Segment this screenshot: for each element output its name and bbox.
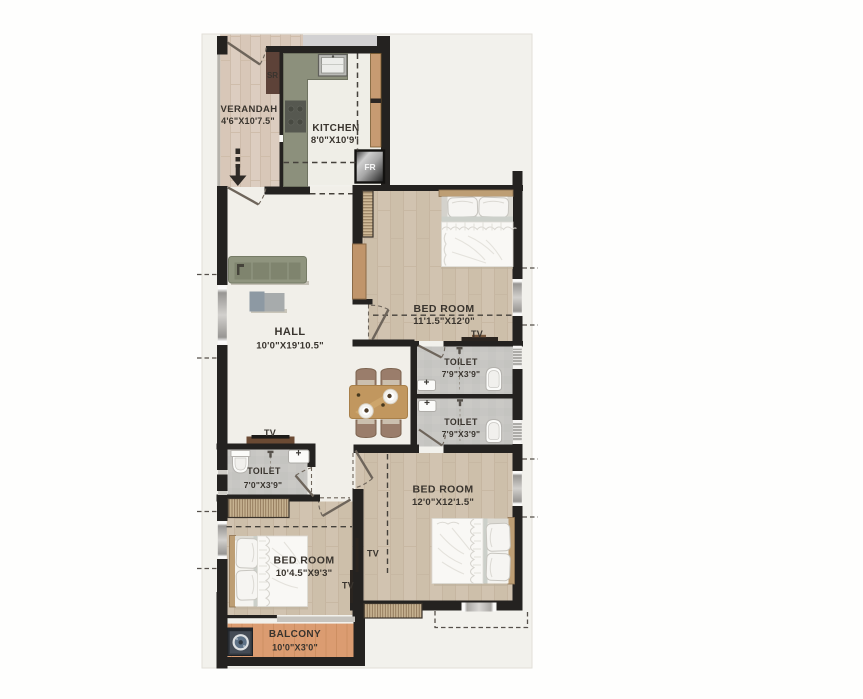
svg-text:10'4.5"X9'3": 10'4.5"X9'3" [276, 568, 333, 579]
svg-text:BALCONY: BALCONY [269, 629, 321, 640]
svg-text:7'0"X3'9": 7'0"X3'9" [244, 480, 282, 490]
svg-text:TOILET: TOILET [444, 417, 478, 427]
svg-text:TV: TV [471, 329, 483, 339]
svg-text:VERANDAH: VERANDAH [220, 104, 277, 115]
svg-text:BED ROOM: BED ROOM [274, 555, 335, 567]
svg-text:10'0"X3'0": 10'0"X3'0" [272, 643, 318, 653]
svg-text:11'1.5"X12'0": 11'1.5"X12'0" [413, 316, 475, 327]
svg-text:7'9"X3'9": 7'9"X3'9" [442, 429, 480, 439]
svg-text:BED ROOM: BED ROOM [413, 484, 474, 496]
svg-text:TV: TV [342, 581, 354, 591]
svg-text:TOILET: TOILET [247, 466, 281, 476]
svg-text:BED ROOM: BED ROOM [414, 303, 475, 315]
svg-text:TV: TV [264, 428, 276, 438]
svg-text:TV: TV [367, 549, 379, 559]
svg-text:KITCHEN: KITCHEN [312, 123, 359, 134]
svg-text:10'0"X19'10.5": 10'0"X19'10.5" [256, 341, 324, 352]
svg-text:7'9"X3'9": 7'9"X3'9" [442, 369, 480, 379]
svg-text:TOILET: TOILET [444, 357, 478, 367]
svg-text:12'0"X12'1.5": 12'0"X12'1.5" [412, 497, 474, 508]
svg-text:4'6"X10'7.5": 4'6"X10'7.5" [221, 116, 275, 126]
svg-text:FR: FR [364, 162, 375, 172]
svg-text:8'0"X10'9": 8'0"X10'9" [311, 135, 359, 146]
svg-text:HALL: HALL [275, 326, 306, 338]
svg-text:SR: SR [267, 71, 278, 80]
